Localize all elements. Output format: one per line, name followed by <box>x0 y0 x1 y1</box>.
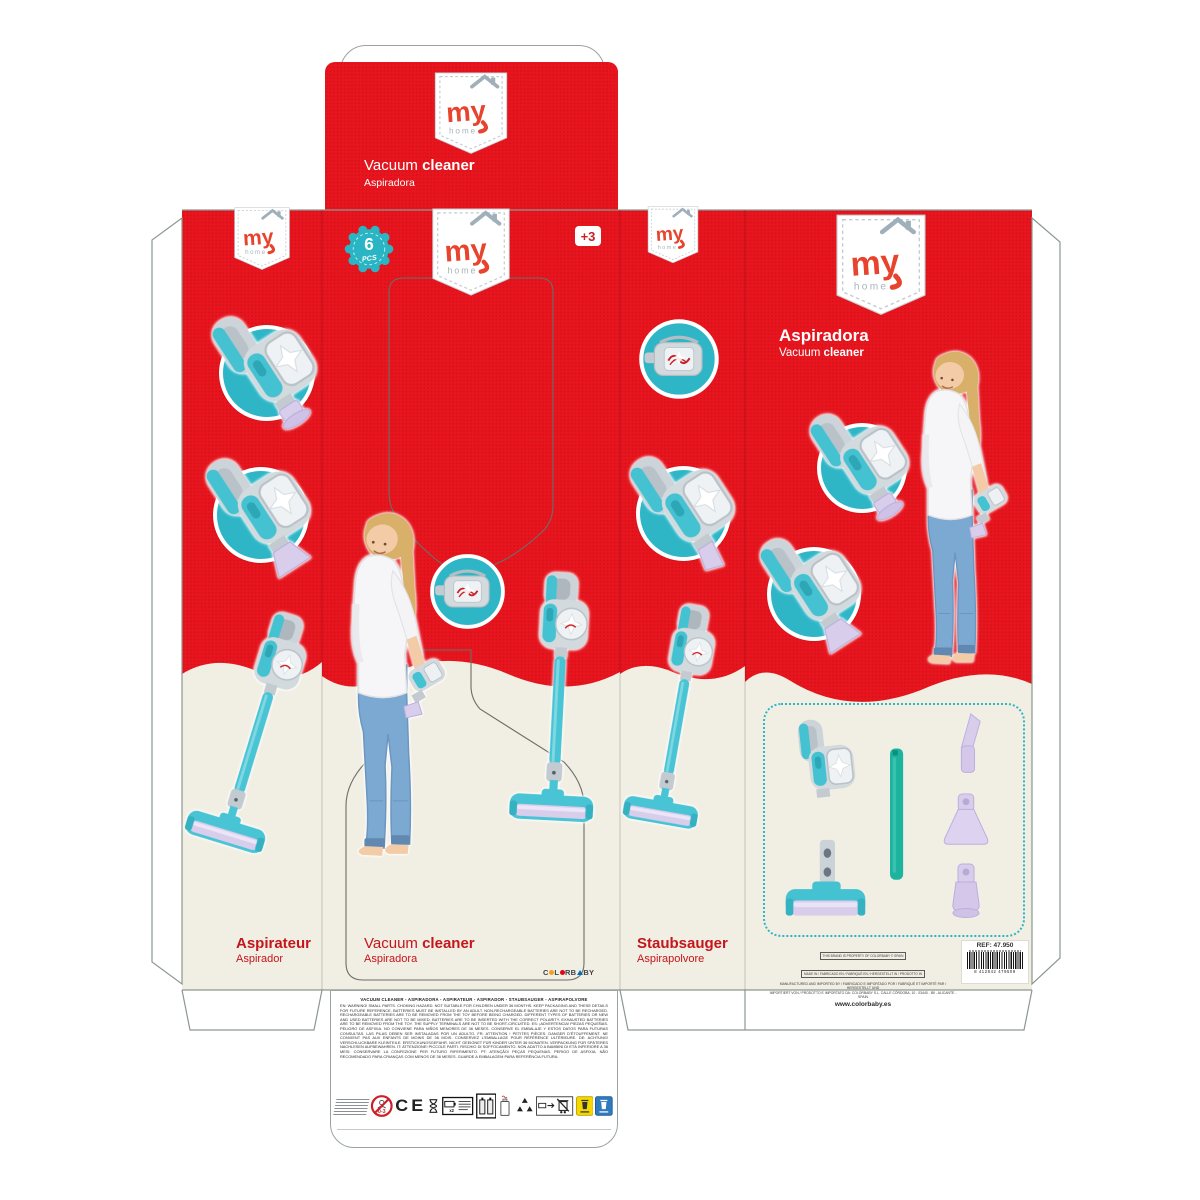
distributor-address-block <box>333 1097 370 1115</box>
colorbaby-triangle-blue <box>577 970 583 975</box>
brand-property-notice: THIS BRAND IS PROPERTY OF COLORBABY © SP… <box>820 952 907 960</box>
brand-badge-top-flap <box>433 72 509 158</box>
colorbaby-dot-red <box>560 970 565 975</box>
ref-number: REF: 47.950 <box>965 942 1025 949</box>
colorbaby-logo: C L R B B Y <box>543 968 594 977</box>
battery-spec-label-icon: x2 <box>442 1096 473 1116</box>
yellow-recycle-bin-icon <box>576 1096 594 1116</box>
side-panel-subtitle: Aspirapolvore <box>637 953 704 966</box>
accessory-round-nozzle <box>947 862 985 920</box>
girl-model-back <box>900 345 1012 703</box>
pieces-badge: 6 PCS <box>342 222 396 276</box>
crease-line <box>337 1129 611 1130</box>
weee-battery-disposal-icon <box>536 1096 573 1116</box>
barcode-bars <box>967 952 1023 969</box>
brand-badge-side2-panel <box>647 206 699 266</box>
barcode-label: REF: 47.950 8 412842 479509 <box>962 941 1028 983</box>
top-flap-subtitle: Aspiradora <box>364 177 415 189</box>
left-panel-subtitle: Aspirador <box>236 953 283 966</box>
barcode-digits: 8 412842 479509 <box>965 969 1025 974</box>
top-flap-title: Vacuum cleaner <box>364 158 475 175</box>
accessory-wide-nozzle <box>938 792 994 852</box>
warning-heading: VACUUM CLEANER - ASPIRADORA - ASPIRATEUR… <box>341 997 607 1002</box>
back-panel-subtitle: Vacuum cleaner <box>779 347 864 359</box>
age-badge-label: +3 <box>581 229 596 244</box>
front-panel-subtitle: Aspiradora <box>364 953 417 966</box>
stick-vacuum-front-panel <box>490 517 621 890</box>
fan-detail-circle-front <box>429 553 506 630</box>
svg-text:6: 6 <box>364 235 374 254</box>
made-in-notice: MADE IN / FABRICADO EN / FABRIQUÉ EN / H… <box>801 970 925 978</box>
brand-badge-front-panel <box>430 208 512 300</box>
fan-detail-circle-side <box>638 318 720 400</box>
age-badge: +3 <box>575 226 601 246</box>
svg-text:x2: x2 <box>450 1108 455 1113</box>
manufacturer-line-1: MANUFACTURED AND IMPORTED BY / FABRICADO… <box>768 982 958 991</box>
safety-icons-row: 0-3 CE x2 <box>335 1089 613 1123</box>
accessory-extension-tube <box>885 745 909 885</box>
age-warning-0-3-icon: 0-3 <box>370 1094 394 1118</box>
blue-recycle-bin-icon <box>595 1096 613 1116</box>
battery-cell-icon <box>498 1093 513 1119</box>
colorbaby-dot-orange <box>549 970 554 975</box>
brand-badge-left-panel <box>233 207 291 273</box>
accessory-crevice-nozzle <box>948 712 986 778</box>
website: www.colorbaby.es <box>768 1001 958 1008</box>
ce-mark: CE <box>395 1096 426 1116</box>
manufacturer-line-2: IMPORTIERT VON / PRODOTTO E IMPORTATO DA… <box>768 991 958 1000</box>
packaging-dieline: my home <box>0 0 1200 1200</box>
side-panel-title: Staubsauger <box>637 936 728 953</box>
back-panel-title: Aspiradora <box>779 326 869 346</box>
accessory-handheld-unit <box>779 710 867 819</box>
bottom-flap: VACUUM CLEANER - ASPIRADORA - ASPIRATEUR… <box>330 990 618 1148</box>
legal-text-block: THIS BRAND IS PROPERTY OF COLORBABY © SP… <box>768 944 958 1008</box>
battery-compartment-icon <box>476 1093 497 1119</box>
brand-badge-back-panel <box>834 214 928 320</box>
recycling-arrows-icon <box>515 1096 535 1116</box>
accessory-floor-head <box>778 838 873 926</box>
hourglass-icon <box>427 1096 440 1116</box>
warning-text: EN: WARNING! SMALL PARTS. CHOKING HAZARD… <box>340 1004 608 1080</box>
front-panel-title: Vacuum cleaner <box>364 936 475 953</box>
left-panel-title: Aspirateur <box>236 936 311 953</box>
